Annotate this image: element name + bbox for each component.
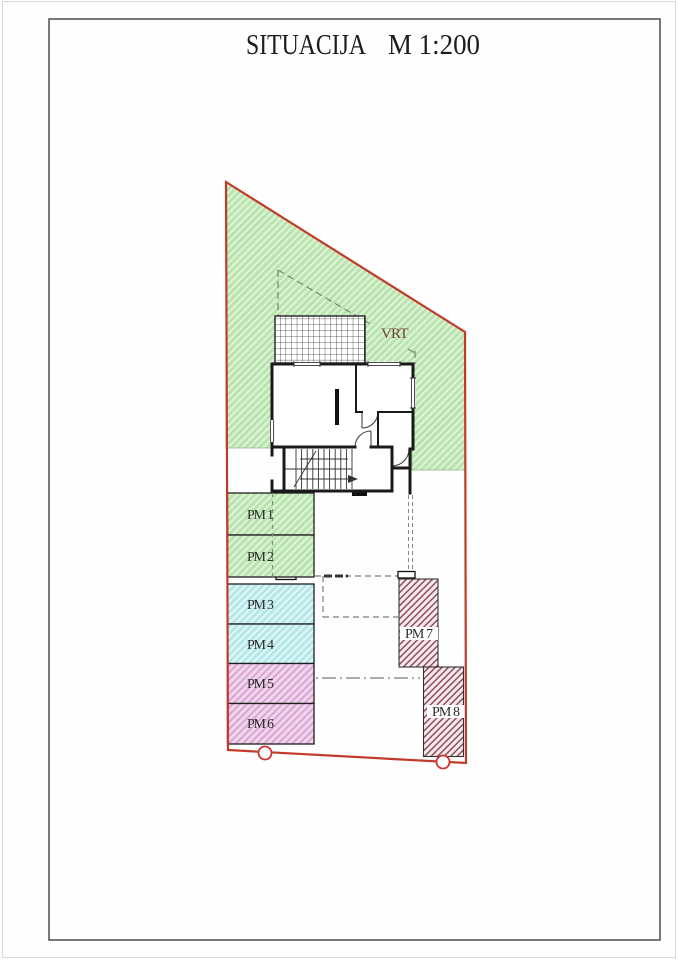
- door-arc-porch: [392, 449, 409, 466]
- survey-marker-left: [259, 747, 272, 760]
- parking-stall-label: PM 3: [247, 598, 274, 613]
- parking-stall-label: PM 7: [405, 627, 433, 642]
- site-plan-drawing: SITUACIJA M 1:200: [0, 0, 678, 960]
- parking-stall-label: PM 1: [247, 508, 274, 523]
- parking-stall-label: PM 5: [247, 677, 274, 692]
- canopy-post-right: [398, 572, 415, 579]
- parking-stall-label: PM 4: [247, 638, 274, 653]
- page: SITUACIJA M 1:200: [0, 0, 678, 960]
- terrace-grid: [275, 316, 365, 363]
- parking-stall-label: PM 6: [247, 717, 274, 732]
- parking-stalls-left: [228, 493, 315, 744]
- building-floor-upper: [273, 365, 412, 448]
- parking-stall-pm7: [399, 579, 438, 667]
- parking-stall-label: PM 8: [432, 705, 460, 720]
- garden-label: VRT: [381, 326, 409, 342]
- building-floor-lower: [273, 446, 391, 490]
- balcony-projection-line: [409, 495, 413, 570]
- drawing-title: SITUACIJA: [246, 30, 367, 61]
- parking-stall-label: PM 2: [247, 550, 274, 565]
- drawing-scale: M 1:200: [388, 30, 480, 61]
- parking-stalls-right: [399, 579, 464, 757]
- building: [270, 361, 416, 496]
- wall-pier: [335, 389, 339, 425]
- survey-marker-right: [437, 756, 450, 769]
